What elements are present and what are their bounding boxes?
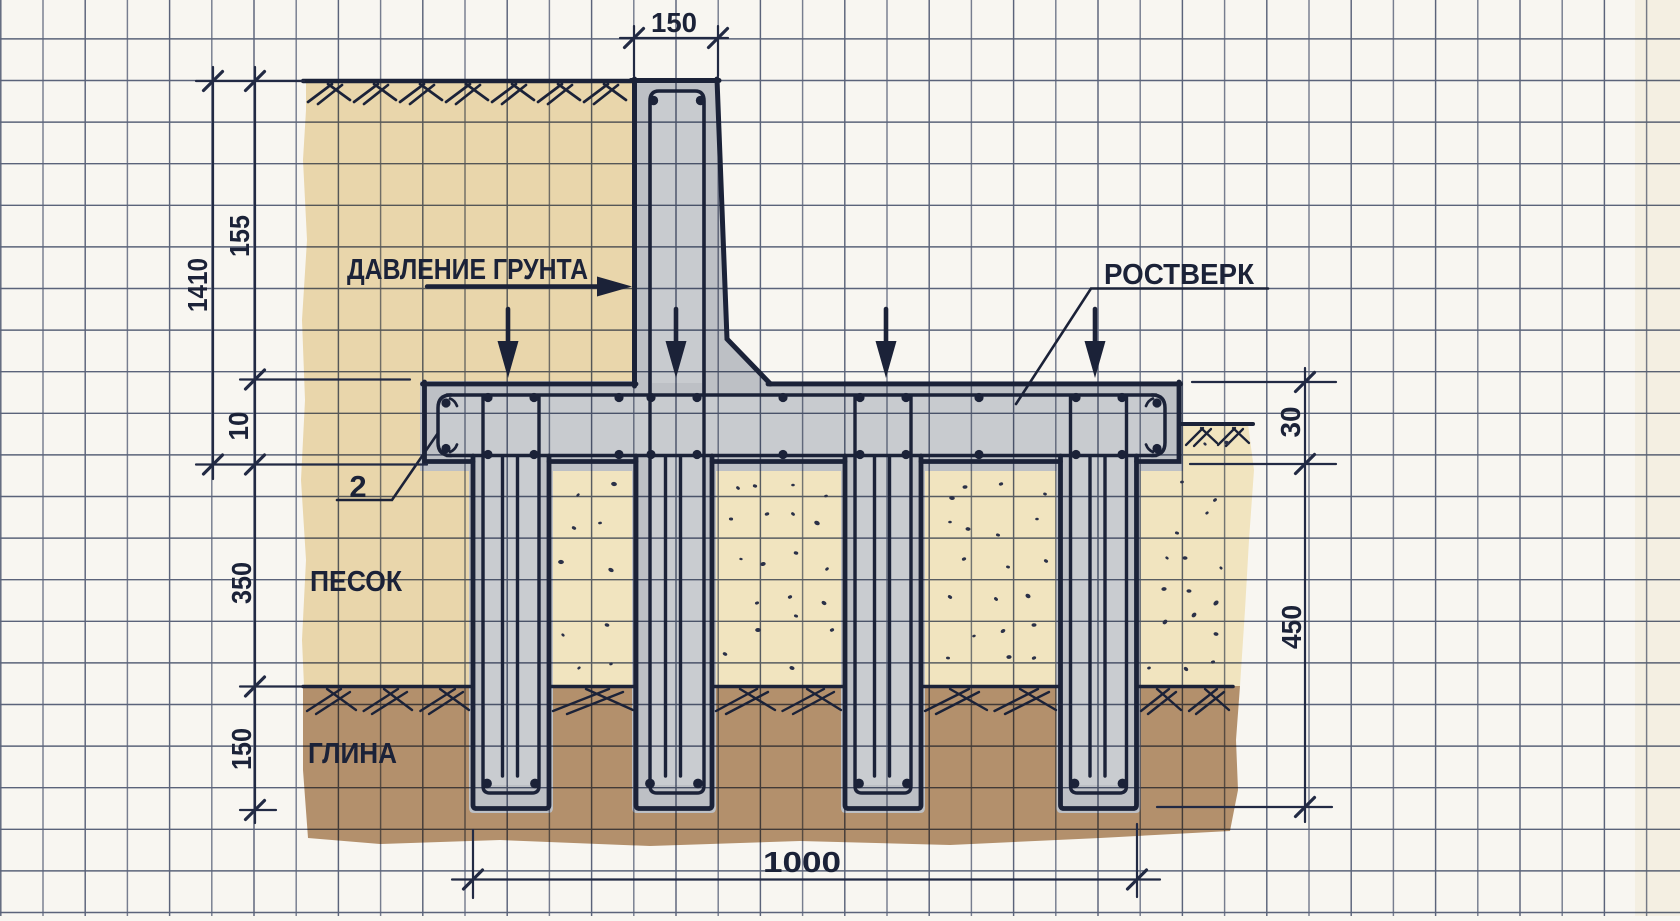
svg-text:ПЕСОК: ПЕСОК bbox=[310, 566, 402, 598]
svg-text:2: 2 bbox=[349, 469, 366, 504]
svg-text:150: 150 bbox=[226, 728, 257, 770]
svg-text:РОСТВЕРК: РОСТВЕРК bbox=[1104, 259, 1254, 291]
svg-text:450: 450 bbox=[1276, 605, 1307, 649]
svg-text:350: 350 bbox=[226, 562, 257, 604]
svg-text:150: 150 bbox=[651, 7, 697, 38]
svg-text:30: 30 bbox=[1275, 407, 1306, 438]
svg-text:ГЛИНА: ГЛИНА bbox=[308, 738, 397, 770]
svg-text:1410: 1410 bbox=[182, 258, 213, 312]
svg-text:155: 155 bbox=[224, 215, 255, 257]
svg-text:10: 10 bbox=[223, 412, 254, 441]
svg-text:ДАВЛЕНИЕ ГРУНТА: ДАВЛЕНИЕ ГРУНТА bbox=[347, 254, 588, 286]
svg-text:1000: 1000 bbox=[763, 847, 841, 879]
